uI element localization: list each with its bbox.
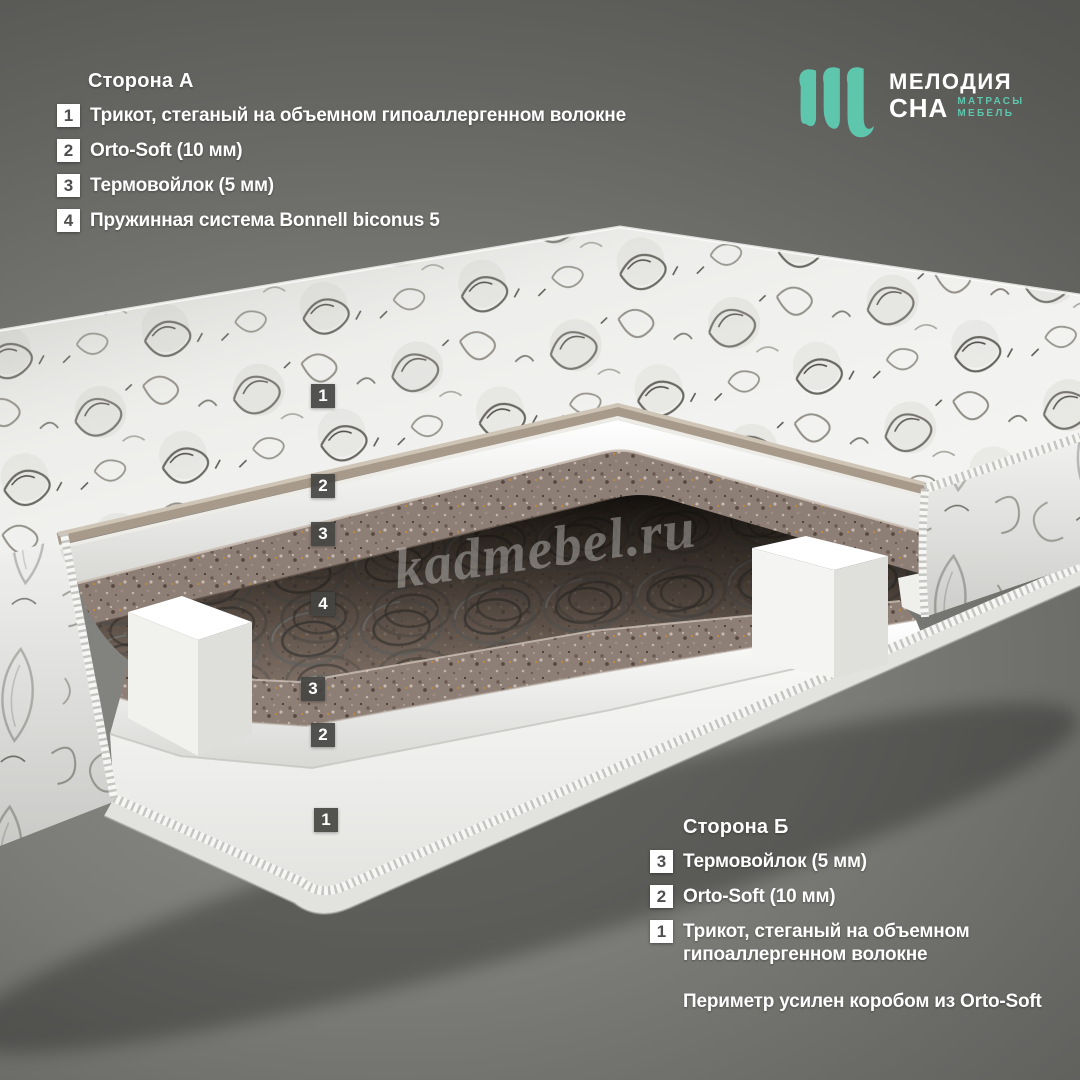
layer-number-badge: 2 bbox=[57, 139, 80, 162]
logo-line1: МЕЛОДИЯ bbox=[889, 70, 1024, 94]
list-item: 3 Термовойлок (5 мм) bbox=[57, 174, 626, 197]
layer-number-badge: 1 bbox=[650, 920, 673, 943]
layer-number-badge: 1 bbox=[57, 104, 80, 127]
side-b-layer-list: Сторона Б 3 Термовойлок (5 мм) 2 Orto-So… bbox=[650, 816, 973, 978]
list-item: 1 Трикот, стеганый на объемном гипоаллер… bbox=[57, 104, 626, 127]
list-item: 4 Пружинная система Bonnell biconus 5 bbox=[57, 209, 626, 232]
layer-label: Трикот, стеганый на объемном гипоаллерге… bbox=[683, 920, 973, 966]
list-item: 3 Термовойлок (5 мм) bbox=[650, 850, 973, 873]
layer-badge-top-felt: 3 bbox=[311, 522, 335, 546]
layer-label: Orto-Soft (10 мм) bbox=[683, 885, 835, 908]
logo-line2: СНА bbox=[889, 95, 948, 121]
corner-box-right bbox=[752, 536, 888, 678]
layer-badge-bottom-felt: 3 bbox=[301, 677, 325, 701]
layer-number-badge: 3 bbox=[57, 174, 80, 197]
layer-number-badge: 4 bbox=[57, 209, 80, 232]
product-card: 1 2 3 4 3 2 1 kadmebel.ru Сторона А 1 Тр… bbox=[0, 0, 1080, 1080]
layer-badge-bottom-quilt: 1 bbox=[314, 808, 338, 832]
layer-badge-top-ortosoft: 2 bbox=[311, 474, 335, 498]
layer-badge-top-quilt: 1 bbox=[311, 384, 335, 408]
logo-tagline-1: МАТРАСЫ bbox=[957, 96, 1024, 108]
list-item: 2 Orto-Soft (10 мм) bbox=[650, 885, 973, 908]
layer-badge-bottom-ortosoft: 2 bbox=[311, 723, 335, 747]
list-item: 2 Orto-Soft (10 мм) bbox=[57, 139, 626, 162]
side-b-title: Сторона Б bbox=[683, 816, 973, 839]
side-a-title: Сторона А bbox=[88, 70, 626, 93]
layer-number-badge: 2 bbox=[650, 885, 673, 908]
layer-label: Пружинная система Bonnell biconus 5 bbox=[90, 209, 440, 232]
layer-label: Термовойлок (5 мм) bbox=[90, 174, 274, 197]
brand-logo: МЕЛОДИЯ СНА МАТРАСЫ МЕБЕЛЬ bbox=[797, 64, 1024, 146]
layer-label: Трикот, стеганый на объемном гипоаллерге… bbox=[90, 104, 626, 127]
side-a-layer-list: Сторона А 1 Трикот, стеганый на объемном… bbox=[57, 70, 626, 244]
logo-text: МЕЛОДИЯ СНА МАТРАСЫ МЕБЕЛЬ bbox=[889, 64, 1024, 121]
list-item: 1 Трикот, стеганый на объемном гипоаллер… bbox=[650, 920, 973, 966]
layer-badge-springs: 4 bbox=[311, 592, 335, 616]
layer-label: Термовойлок (5 мм) bbox=[683, 850, 867, 873]
layer-number-badge: 3 bbox=[650, 850, 673, 873]
melodia-m-icon bbox=[797, 64, 877, 146]
layer-label: Orto-Soft (10 мм) bbox=[90, 139, 242, 162]
logo-tagline-2: МЕБЕЛЬ bbox=[957, 108, 1024, 120]
perimeter-note: Периметр усилен коробом из Orto-Soft bbox=[683, 991, 1042, 1013]
